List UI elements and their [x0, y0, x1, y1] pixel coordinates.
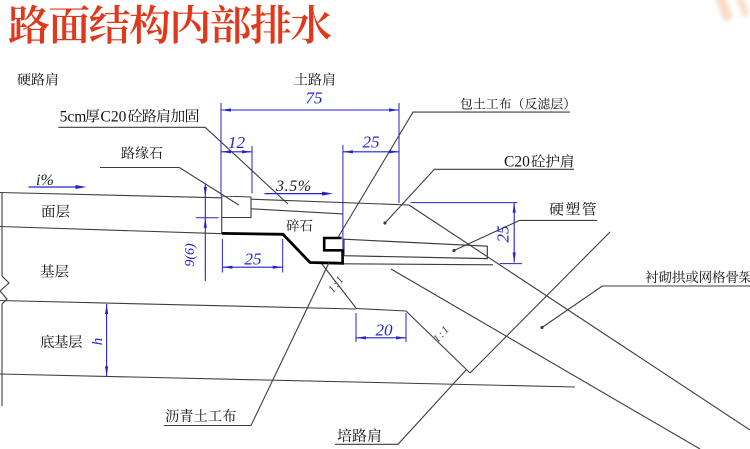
svg-text:25: 25	[362, 133, 379, 152]
svg-text:25: 25	[245, 250, 262, 269]
svg-text:5cm: 5cm	[60, 108, 87, 125]
svg-text:h: h	[90, 338, 106, 346]
svg-text:20: 20	[376, 321, 394, 340]
svg-text:9(6): 9(6)	[183, 243, 198, 267]
svg-text:25: 25	[494, 226, 513, 243]
svg-text:12: 12	[228, 133, 246, 152]
svg-text:3.5%: 3.5%	[275, 178, 312, 195]
svg-text:75: 75	[306, 89, 323, 108]
svg-text:C20: C20	[504, 154, 530, 171]
svg-text:C20: C20	[101, 108, 127, 125]
